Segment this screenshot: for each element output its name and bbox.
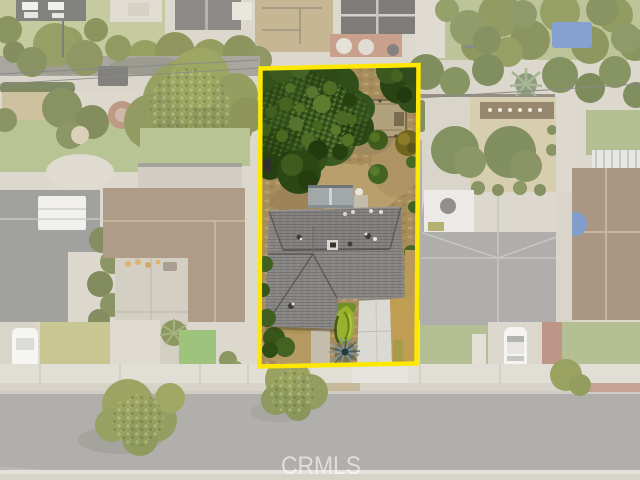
svg-text:CRMLS: CRMLS <box>281 452 361 480</box>
